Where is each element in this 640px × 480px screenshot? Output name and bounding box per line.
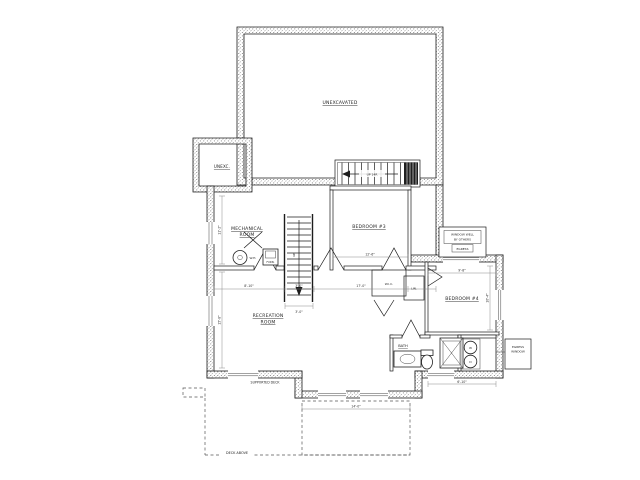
dim-rec-w2: 3'-0" (295, 284, 303, 288)
mechanical-label-1: MECHANICAL (231, 226, 263, 232)
floor-plan-svg: UNEXCAVATED UNEXC. UP 14R UP (0, 0, 640, 480)
recreation-label-2: ROOM (261, 320, 276, 326)
wall-bottom-east (295, 391, 422, 398)
bath-label: BATH (398, 344, 408, 348)
bath-top-wall-a (390, 335, 402, 338)
dim-rec-w1: 8'-10" (244, 284, 254, 288)
vanity (394, 351, 421, 367)
dim-deck-w: 14'-0" (351, 405, 361, 409)
toilet-bowl (422, 355, 433, 369)
washer-label: W (469, 346, 472, 350)
bath-left-wall (390, 335, 393, 371)
callout-text-2: WINDOW (511, 350, 525, 354)
divider-wall-d (344, 266, 382, 270)
deck-stub (183, 388, 205, 397)
unexc-small-label: UNEXC. (214, 164, 230, 169)
supported-deck-label: SUPPORTED DECK (251, 381, 281, 385)
window-well-box (439, 227, 486, 257)
bedroom4-bottom-wall (425, 332, 499, 335)
floor-plan-canvas: UNEXCAVATED UNEXC. UP 14R UP (0, 0, 640, 480)
hall-door (382, 248, 406, 270)
dim-bed3-w: 12'-6" (365, 253, 375, 257)
bath-fixtures: W D (394, 338, 480, 369)
bedroom3-label: BEDROOM #3 (352, 224, 386, 230)
bedroom3-right-wall (408, 190, 411, 270)
dim-bath-w: 6'-10" (457, 380, 467, 384)
dim-rec-h: 15'-8" (218, 315, 222, 325)
furnace-label: FURN. (267, 260, 275, 264)
dim-stair-w: 3'-0" (295, 310, 303, 314)
divider-wall-a (214, 266, 254, 270)
divider-wall-b (276, 266, 284, 270)
bedroom3-left-wall (330, 190, 333, 270)
closet-door (374, 300, 394, 316)
deck-label: DECK ABOVE (226, 451, 248, 455)
center-stairs-label: UP (292, 253, 296, 257)
upper-stairs: UP 14R (335, 160, 420, 187)
bedroom4-label: BEDROOM #4 (445, 296, 479, 302)
window-well: WINDOW WELL BY OTHERS EGRESS (439, 227, 486, 257)
bedroom3-top-wall (330, 186, 411, 190)
dim-line-stairs (285, 303, 313, 309)
dim-bed4-h: 10'-4" (486, 293, 490, 303)
deck-dashed-lines (205, 398, 410, 455)
water-heater-label: W.H. (250, 256, 257, 260)
unexcavated-label: UNEXCAVATED (323, 100, 358, 106)
bedroom4-door (428, 268, 442, 286)
window-well-note-2: BY OTHERS (454, 238, 471, 242)
bath-top-wall-b (420, 335, 430, 338)
upper-stairs-label: UP 14R (367, 173, 378, 177)
water-heater (233, 251, 247, 265)
window-well-note-3: EGRESS (456, 247, 468, 251)
window-well-note-1: WINDOW WELL (451, 233, 474, 237)
dim-bed4-w: 9'-8" (458, 269, 466, 273)
divider-wall-e (406, 266, 436, 270)
mechanical-label-2: ROOM (240, 232, 255, 238)
bath-door (402, 320, 420, 337)
dim-mech-h: 11'-2" (218, 225, 222, 235)
callout-box (505, 339, 531, 369)
callout-text-1: EGRESS (512, 345, 524, 349)
linen-label: LIN. (411, 287, 417, 291)
laundry-top-wall (458, 335, 496, 338)
wall-left (207, 186, 214, 378)
divider-wall-c (314, 266, 318, 270)
dim-rec-w3: 17'-0" (356, 284, 366, 288)
wic-label: W.I.C. (385, 282, 394, 286)
recreation-label-1: RECREATION (253, 313, 284, 319)
bedroom4-left-wall (425, 262, 428, 335)
